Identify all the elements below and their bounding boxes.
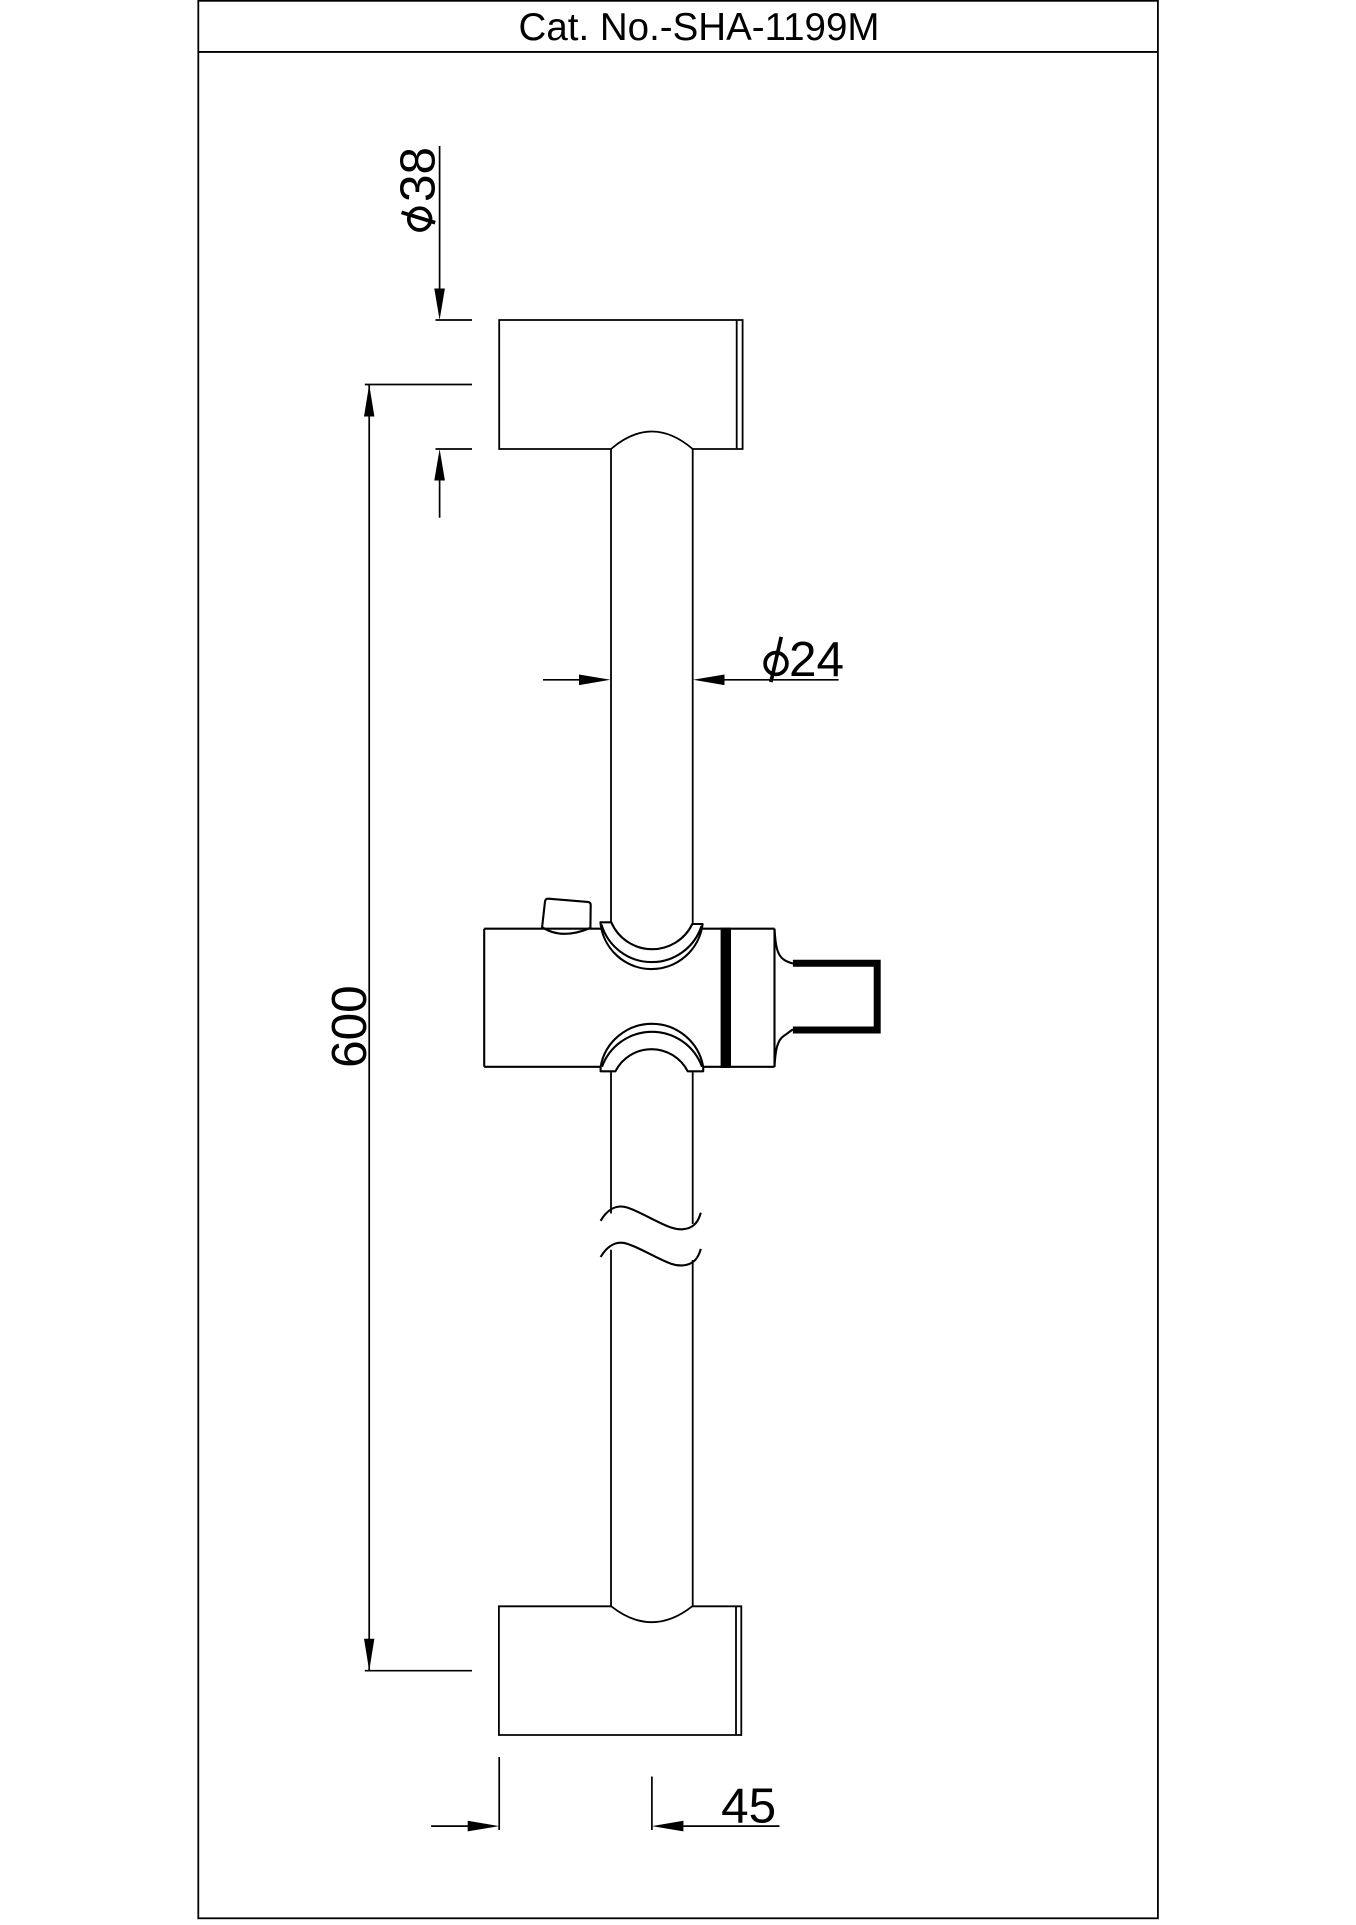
svg-text:38: 38 bbox=[391, 147, 446, 202]
svg-text:45: 45 bbox=[721, 1778, 776, 1833]
svg-text:24: 24 bbox=[789, 632, 844, 687]
svg-text:Cat. No.-SHA-1199M: Cat. No.-SHA-1199M bbox=[519, 6, 880, 49]
svg-text:600: 600 bbox=[322, 985, 377, 1068]
